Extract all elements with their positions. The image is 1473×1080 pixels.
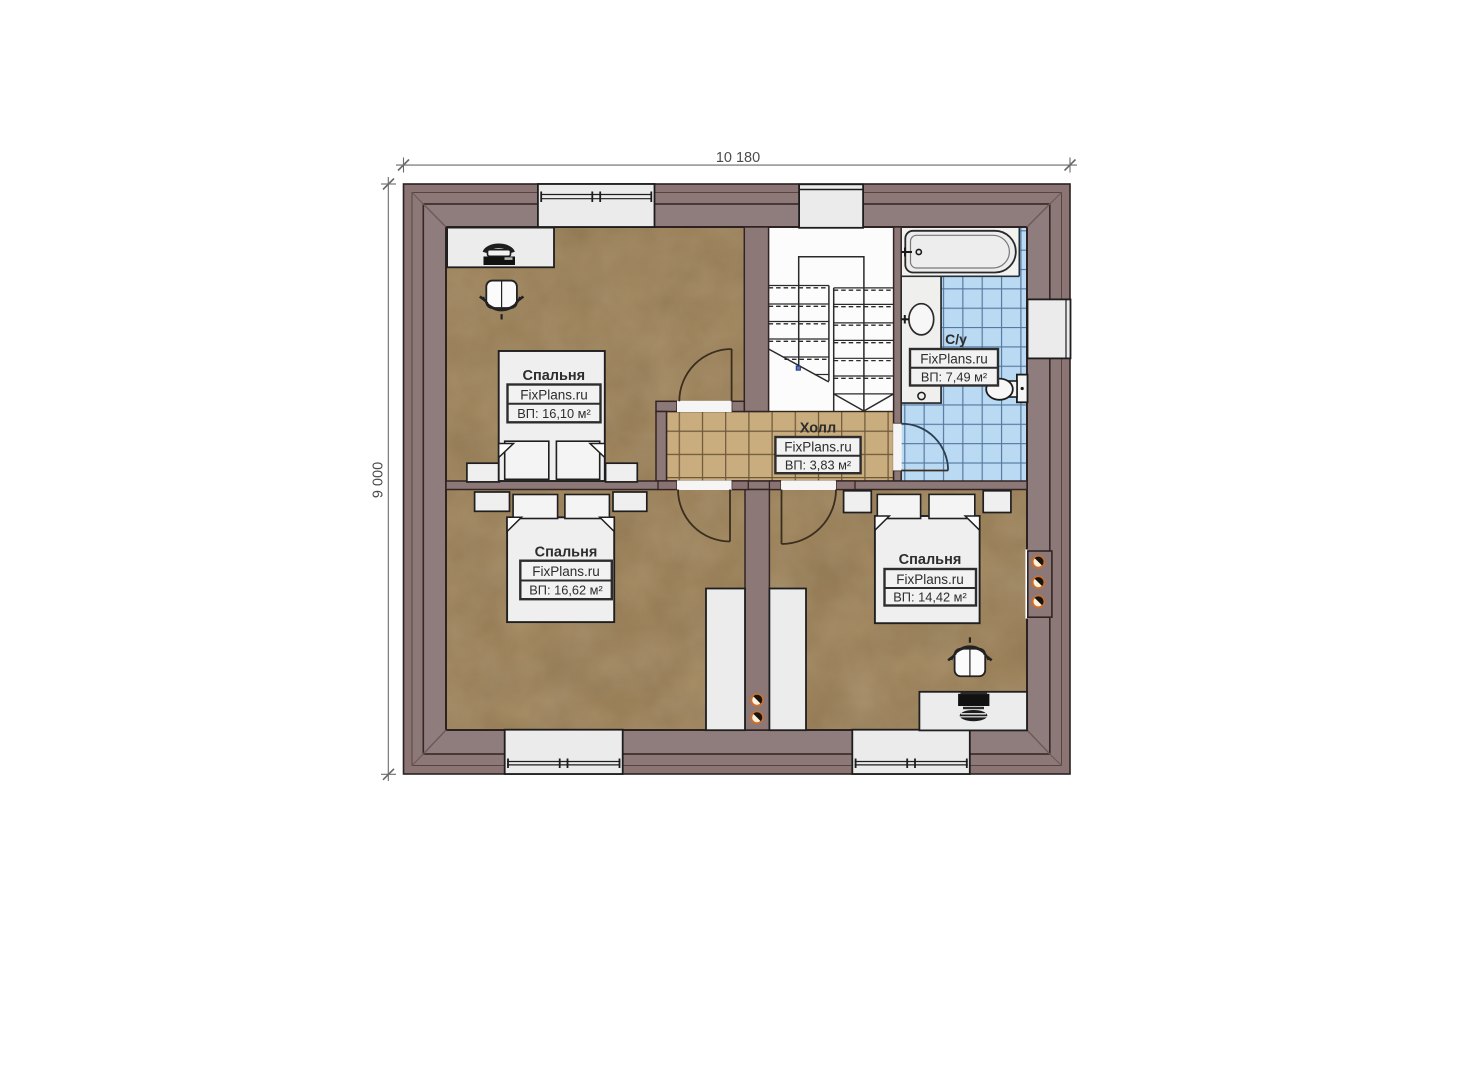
svg-text:Холл: Холл (800, 420, 836, 436)
svg-text:FixPlans.ru: FixPlans.ru (896, 572, 964, 587)
svg-text:Спальня: Спальня (522, 368, 585, 384)
svg-text:ВП: 3,83 м²: ВП: 3,83 м² (785, 457, 852, 472)
svg-text:ВП: 16,10 м²: ВП: 16,10 м² (517, 406, 591, 421)
svg-text:FixPlans.ru: FixPlans.ru (784, 440, 852, 455)
svg-text:С/у: С/у (945, 331, 967, 347)
svg-text:Спальня: Спальня (535, 545, 598, 561)
svg-text:10 180: 10 180 (716, 150, 760, 166)
svg-text:FixPlans.ru: FixPlans.ru (920, 352, 988, 367)
svg-text:ВП: 14,42 м²: ВП: 14,42 м² (893, 590, 967, 605)
svg-text:9 000: 9 000 (371, 462, 387, 498)
svg-text:FixPlans.ru: FixPlans.ru (520, 387, 588, 402)
svg-text:ВП: 16,62 м²: ВП: 16,62 м² (529, 583, 603, 598)
svg-text:Спальня: Спальня (899, 552, 962, 568)
svg-text:FixPlans.ru: FixPlans.ru (532, 564, 600, 579)
svg-text:ВП: 7,49 м²: ВП: 7,49 м² (921, 369, 988, 384)
